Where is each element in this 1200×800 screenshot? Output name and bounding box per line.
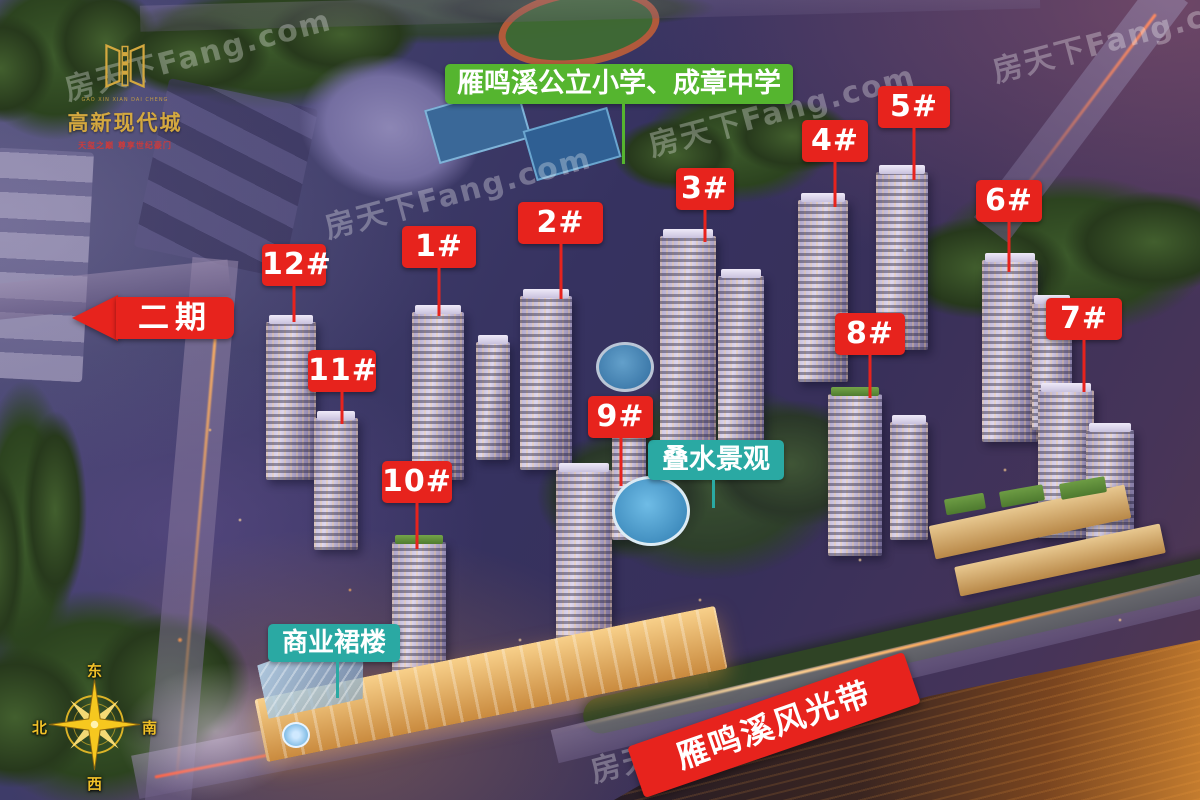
building-number-text: 1#	[415, 229, 463, 264]
commercial-podium-label: 商业裙楼	[268, 624, 400, 662]
leader-line	[834, 162, 837, 207]
compass-bottom-label: 西	[87, 773, 102, 794]
leader-line	[293, 286, 296, 322]
masterplan-aerial-view: 房天下Fang.com房天下Fang.com房天下Fang.com房天下Fang…	[0, 0, 1200, 800]
leader-line	[704, 210, 707, 242]
logo-latin-text: GAO XIN XIAN DAI CHENG	[62, 97, 188, 103]
compass-left-label: 北	[32, 717, 47, 738]
building-number-text: 5#	[890, 89, 938, 124]
building-label-8: 8#	[835, 313, 905, 355]
building-label-4: 4#	[802, 120, 868, 162]
leader-line	[1008, 222, 1011, 272]
building-label-9: 9#	[588, 396, 653, 438]
building-label-6: 6#	[976, 180, 1042, 222]
water-feature-label: 叠水景观	[648, 440, 784, 480]
building-label-11: 11#	[308, 350, 376, 392]
commercial-podium-text: 商业裙楼	[282, 628, 386, 658]
building-label-3: 3#	[676, 168, 734, 210]
leader-line	[622, 104, 625, 164]
building-number-text: 11#	[308, 353, 378, 388]
leader-line	[1083, 340, 1086, 392]
compass-right-label: 南	[142, 717, 157, 738]
building-label-1: 1#	[402, 226, 476, 268]
leader-line	[416, 503, 419, 549]
phase2-arrow: 二期	[72, 295, 236, 341]
building-number-text: 8#	[846, 316, 894, 351]
leader-line	[438, 268, 441, 316]
building-label-2: 2#	[518, 202, 603, 244]
building-number-text: 4#	[811, 123, 859, 158]
compass-star-icon	[47, 677, 142, 772]
building-number-text: 2#	[536, 205, 584, 240]
building-number-text: 6#	[985, 183, 1033, 218]
building-number-text: 9#	[596, 399, 644, 434]
building-label-12: 12#	[262, 244, 326, 286]
building-number-text: 7#	[1060, 301, 1108, 336]
phase2-label: 二期	[116, 297, 234, 339]
leader-line	[869, 355, 872, 398]
water-feature-text: 叠水景观	[662, 444, 770, 475]
leader-line	[619, 438, 622, 486]
developer-logo: GAO XIN XIAN DAI CHENG 高新现代城 天玺之巅 尊享世纪豪门	[62, 40, 188, 151]
leader-line	[712, 480, 715, 508]
leader-line	[336, 662, 339, 698]
leader-line	[913, 128, 916, 180]
building-label-7: 7#	[1046, 298, 1122, 340]
school-label: 雁鸣溪公立小学、成章中学	[445, 64, 793, 104]
building-label-10: 10#	[382, 461, 452, 503]
project-tagline: 天玺之巅 尊享世纪豪门	[62, 140, 188, 151]
building-number-text: 10#	[382, 464, 452, 499]
building-number-text: 3#	[681, 171, 729, 206]
building-number-text: 12#	[262, 247, 332, 282]
project-name: 高新现代城	[62, 107, 188, 137]
logo-emblem-icon	[97, 40, 153, 92]
compass-top-label: 东	[87, 660, 102, 681]
compass-rose: 东 南 西 北	[30, 660, 160, 790]
arrow-left-icon	[72, 295, 118, 341]
leader-line	[559, 244, 562, 299]
leader-line	[341, 392, 344, 424]
building-label-5: 5#	[878, 86, 950, 128]
school-label-text: 雁鸣溪公立小学、成章中学	[457, 68, 781, 99]
